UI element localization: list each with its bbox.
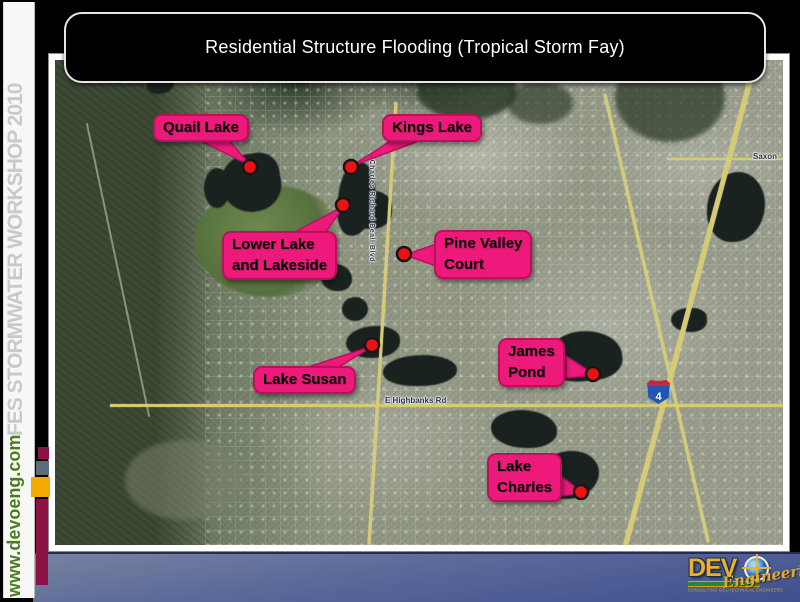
callout-text: James [508, 341, 555, 362]
callout-tail [305, 346, 373, 368]
callout-lake-charles: Lake Charles [487, 453, 562, 502]
flood-marker-lower-lake [336, 198, 350, 212]
callout-text: Quail Lake [163, 117, 239, 138]
callout-text: Kings Lake [392, 117, 472, 138]
flood-marker-lake-charles [574, 485, 588, 499]
callout-tail [352, 138, 427, 166]
slide-title: Residential Structure Flooding (Tropical… [205, 37, 625, 58]
callout-text: Lake [497, 456, 552, 477]
callout-text: Lake Susan [263, 369, 346, 390]
flood-marker-lake-susan [365, 338, 379, 352]
flood-marker-james-pond [586, 367, 600, 381]
stripe-segment-maroon-long [36, 499, 48, 585]
stripe-segment-slate [36, 461, 49, 475]
callout-kings-lake: Kings Lake [382, 114, 482, 142]
callout-lower-lake-lakeside: Lower Lake and Lakeside [222, 231, 337, 280]
slide-title-box: Residential Structure Flooding (Tropical… [64, 12, 766, 83]
workshop-vertical-label: FES STORMWATER WORKSHOP 2010 [4, 8, 34, 436]
satellite-map: E Highbanks Rd Saxon S Charles Richard B… [55, 60, 783, 545]
website-vertical-label: www.devoeng.com [4, 445, 34, 597]
stripe-segment-amber [31, 477, 50, 497]
callout-text: and Lakeside [232, 255, 327, 276]
devo-engineering-logo: DEV Engineering CONSULTING GEOTECHNICAL … [688, 556, 796, 598]
callout-james-pond: James Pond [498, 338, 565, 387]
map-frame: E Highbanks Rd Saxon S Charles Richard B… [48, 53, 790, 552]
stripe-segment-maroon [38, 447, 49, 459]
callout-lake-susan: Lake Susan [253, 366, 356, 394]
sidebar: FES STORMWATER WORKSHOP 2010 www.devoeng… [3, 2, 35, 598]
callout-text: Charles [497, 477, 552, 498]
callout-tail [293, 206, 344, 233]
flood-marker-quail-lake [243, 160, 257, 174]
callout-text: Court [444, 254, 522, 275]
callout-quail-lake: Quail Lake [153, 114, 249, 142]
callout-tail [195, 138, 251, 166]
flood-marker-pine-valley-court [397, 247, 411, 261]
flood-marker-kings-lake [344, 160, 358, 174]
callout-pine-valley-court: Pine Valley Court [434, 230, 532, 279]
callout-text: Pond [508, 362, 555, 383]
callout-text: Pine Valley [444, 233, 522, 254]
callout-text: Lower Lake [232, 234, 327, 255]
bottom-bar [33, 552, 800, 602]
